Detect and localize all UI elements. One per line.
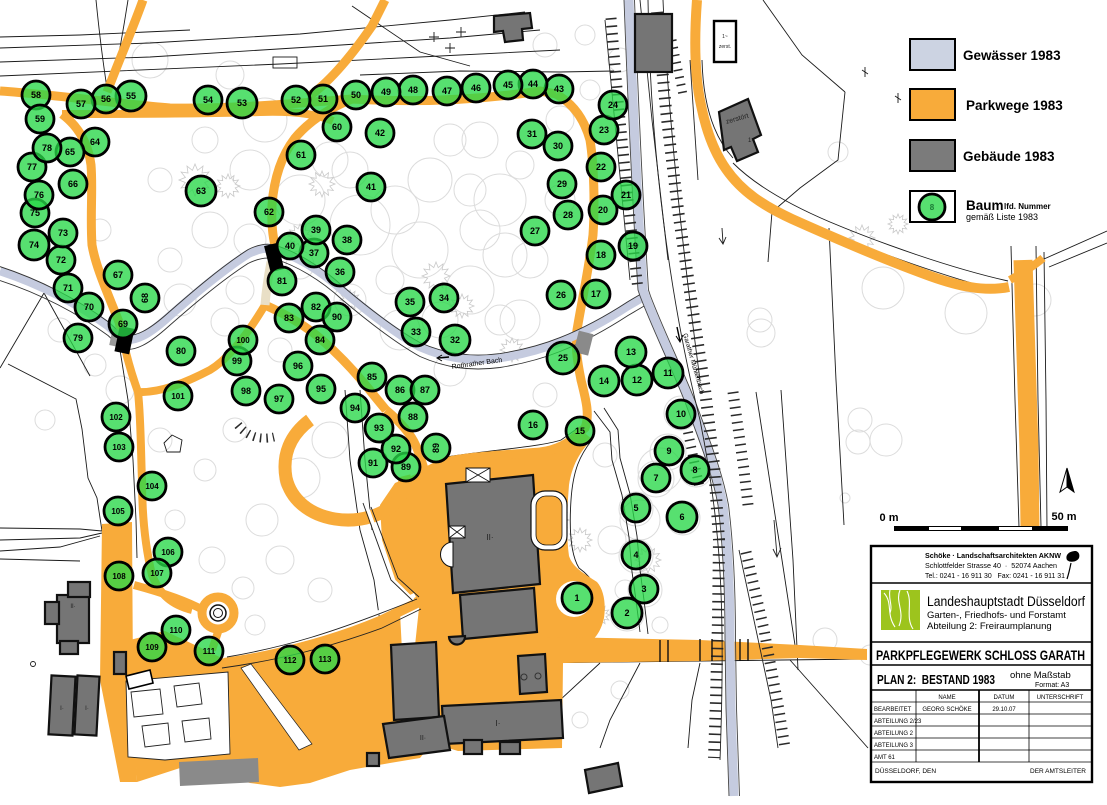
svg-text:25: 25 xyxy=(558,353,568,363)
svg-text:Garten-, Friedhofs- und Forsta: Garten-, Friedhofs- und Forstamt xyxy=(927,610,1066,621)
svg-text:0 m: 0 m xyxy=(880,512,899,524)
svg-text:36: 36 xyxy=(335,267,345,277)
svg-text:31: 31 xyxy=(527,129,537,139)
svg-text:DER AMTSLEITER: DER AMTSLEITER xyxy=(1030,768,1086,775)
svg-text:46: 46 xyxy=(471,83,481,93)
svg-text:Tel.: 0241 - 16 911 30 Fax:: Tel.: 0241 - 16 911 30 Fax: 0241 - 16 91… xyxy=(925,571,1065,580)
svg-text:II·: II· xyxy=(70,604,75,610)
svg-text:ABTEILUNG 2/23: ABTEILUNG 2/23 xyxy=(874,719,922,725)
svg-text:62: 62 xyxy=(264,207,274,217)
svg-text:79: 79 xyxy=(73,333,83,343)
svg-text:61: 61 xyxy=(296,150,306,160)
svg-text:106: 106 xyxy=(161,548,175,557)
svg-text:26: 26 xyxy=(556,290,566,300)
svg-text:Schlottfelder Strasse 40 · 5: Schlottfelder Strasse 40 · 52074 Aachen xyxy=(925,561,1057,570)
svg-text:96: 96 xyxy=(293,361,303,371)
svg-text:PARKPFLEGEWERK SCHLOSS GARATH: PARKPFLEGEWERK SCHLOSS GARATH xyxy=(876,648,1085,664)
svg-text:50 m: 50 m xyxy=(1051,511,1076,523)
svg-text:19: 19 xyxy=(628,241,638,251)
svg-text:14: 14 xyxy=(599,376,609,386)
svg-text:I·: I· xyxy=(60,706,64,712)
svg-text:47: 47 xyxy=(442,86,452,96)
svg-text:13: 13 xyxy=(626,347,636,357)
svg-text:23: 23 xyxy=(599,125,609,135)
svg-text:71: 71 xyxy=(63,283,73,293)
svg-text:Parkwege 1983: Parkwege 1983 xyxy=(966,98,1063,113)
svg-text:89: 89 xyxy=(401,462,411,472)
svg-text:22: 22 xyxy=(596,162,606,172)
svg-text:44: 44 xyxy=(528,79,538,89)
svg-text:103: 103 xyxy=(112,443,126,452)
svg-text:64: 64 xyxy=(90,137,100,147)
svg-text:48: 48 xyxy=(408,85,418,95)
svg-text:84: 84 xyxy=(315,335,325,345)
svg-text:92: 92 xyxy=(391,444,401,454)
svg-text:74: 74 xyxy=(29,240,39,250)
svg-text:51: 51 xyxy=(318,94,328,104)
svg-text:58: 58 xyxy=(31,90,41,100)
svg-text:20: 20 xyxy=(598,205,608,215)
svg-text:42: 42 xyxy=(375,128,385,138)
svg-text:72: 72 xyxy=(56,255,66,265)
svg-text:28: 28 xyxy=(563,210,573,220)
svg-text:1·: 1· xyxy=(748,138,753,144)
svg-text:2: 2 xyxy=(624,608,629,618)
svg-text:99: 99 xyxy=(232,356,242,366)
svg-text:29: 29 xyxy=(557,179,567,189)
svg-text:53: 53 xyxy=(237,98,247,108)
svg-text:34: 34 xyxy=(439,293,449,303)
svg-text:75: 75 xyxy=(30,208,40,218)
svg-text:24: 24 xyxy=(608,100,618,110)
svg-text:56: 56 xyxy=(101,94,111,104)
svg-text:GEORG SCHÖKE: GEORG SCHÖKE xyxy=(922,706,971,713)
svg-text:43: 43 xyxy=(554,84,564,94)
svg-text:69: 69 xyxy=(118,319,128,329)
svg-text:78: 78 xyxy=(42,143,52,153)
svg-text:91: 91 xyxy=(368,458,378,468)
svg-text:8: 8 xyxy=(930,203,935,212)
svg-text:70: 70 xyxy=(84,302,94,312)
svg-text:Gewässer 1983: Gewässer 1983 xyxy=(963,48,1061,63)
svg-text:9: 9 xyxy=(666,446,671,456)
svg-text:68: 68 xyxy=(140,293,150,303)
svg-text:80: 80 xyxy=(176,346,186,356)
svg-text:18: 18 xyxy=(596,250,606,260)
svg-text:II·: II· xyxy=(486,533,493,542)
svg-text:zerst.: zerst. xyxy=(719,44,731,50)
svg-text:97: 97 xyxy=(274,394,284,404)
svg-text:63: 63 xyxy=(196,186,206,196)
svg-text:112: 112 xyxy=(284,656,297,665)
svg-text:108: 108 xyxy=(112,572,126,581)
svg-text:Baum: Baum xyxy=(966,198,1004,213)
svg-text:17: 17 xyxy=(591,289,601,299)
svg-text:104: 104 xyxy=(145,482,159,491)
svg-text:Landeshauptstadt Düsseldorf: Landeshauptstadt Düsseldorf xyxy=(927,594,1085,609)
svg-text:7: 7 xyxy=(653,473,658,483)
svg-text:76: 76 xyxy=(34,190,44,200)
svg-text:66: 66 xyxy=(68,179,78,189)
svg-text:27: 27 xyxy=(530,226,540,236)
svg-text:1: 1 xyxy=(574,593,579,603)
svg-text:59: 59 xyxy=(35,114,45,124)
svg-text:81: 81 xyxy=(277,276,287,286)
svg-text:40: 40 xyxy=(285,241,295,251)
svg-text:88: 88 xyxy=(408,412,418,422)
svg-text:38: 38 xyxy=(342,235,352,245)
svg-text:93: 93 xyxy=(374,423,384,433)
svg-text:85: 85 xyxy=(367,372,377,382)
svg-text:52: 52 xyxy=(291,95,301,105)
svg-text:94: 94 xyxy=(350,403,360,413)
svg-text:54: 54 xyxy=(203,95,213,105)
svg-text:109: 109 xyxy=(145,643,159,652)
svg-text:105: 105 xyxy=(111,507,125,516)
svg-text:II·: II· xyxy=(420,735,426,742)
svg-text:35: 35 xyxy=(405,297,415,307)
svg-text:ABTEILUNG 3: ABTEILUNG 3 xyxy=(874,743,914,749)
svg-text:82: 82 xyxy=(311,302,321,312)
svg-text:33: 33 xyxy=(411,327,421,337)
svg-text:lfd. Nummer: lfd. Nummer xyxy=(1004,202,1051,211)
svg-text:100: 100 xyxy=(236,336,250,345)
svg-text:12: 12 xyxy=(632,375,642,385)
svg-text:102: 102 xyxy=(109,413,123,422)
svg-text:57: 57 xyxy=(76,99,86,109)
svg-text:37: 37 xyxy=(309,248,319,258)
svg-text:60: 60 xyxy=(332,122,342,132)
svg-text:87: 87 xyxy=(420,385,430,395)
svg-text:DÜSSELDORF, DEN: DÜSSELDORF, DEN xyxy=(875,767,936,775)
svg-text:3: 3 xyxy=(641,584,646,594)
svg-text:I·: I· xyxy=(496,719,501,728)
svg-text:ohne Maßstab: ohne Maßstab xyxy=(1010,670,1071,681)
svg-text:49: 49 xyxy=(381,87,391,97)
svg-text:21: 21 xyxy=(621,190,631,200)
svg-text:107: 107 xyxy=(150,569,164,578)
svg-text:50: 50 xyxy=(351,90,361,100)
svg-text:95: 95 xyxy=(316,384,326,394)
svg-text:73: 73 xyxy=(58,228,68,238)
svg-text:6: 6 xyxy=(679,512,684,522)
svg-text:55: 55 xyxy=(126,91,136,101)
svg-text:Schöke · Landschaftsarchitekte: Schöke · Landschaftsarchitekten AKNW xyxy=(925,551,1062,560)
svg-text:11: 11 xyxy=(663,368,673,378)
svg-text:98: 98 xyxy=(241,386,251,396)
svg-text:29.10.07: 29.10.07 xyxy=(992,707,1016,713)
svg-text:I·: I· xyxy=(85,706,89,712)
svg-text:1~: 1~ xyxy=(722,34,728,40)
svg-text:5: 5 xyxy=(633,503,638,513)
svg-text:90: 90 xyxy=(332,312,342,322)
svg-text:Format: A3: Format: A3 xyxy=(1035,682,1069,689)
svg-text:30: 30 xyxy=(553,141,563,151)
svg-text:32: 32 xyxy=(450,335,460,345)
svg-text:DATUM: DATUM xyxy=(994,695,1015,701)
svg-text:110: 110 xyxy=(170,626,183,635)
svg-text:101: 101 xyxy=(171,392,185,401)
svg-text:86: 86 xyxy=(395,385,405,395)
svg-text:16: 16 xyxy=(528,420,538,430)
svg-text:ABTEILUNG 2: ABTEILUNG 2 xyxy=(874,731,914,737)
svg-text:39: 39 xyxy=(311,225,321,235)
svg-text:41: 41 xyxy=(366,182,376,192)
svg-text:BEARBEITET: BEARBEITET xyxy=(874,707,912,713)
svg-text:8: 8 xyxy=(692,465,697,475)
svg-text:67: 67 xyxy=(113,270,123,280)
svg-text:gemäß Liste 1983: gemäß Liste 1983 xyxy=(966,212,1038,222)
svg-text:15: 15 xyxy=(575,426,585,436)
svg-text:Gebäude 1983: Gebäude 1983 xyxy=(963,149,1055,164)
svg-text:83: 83 xyxy=(284,313,294,323)
svg-text:111: 111 xyxy=(203,647,216,656)
svg-text:UNTERSCHRIFT: UNTERSCHRIFT xyxy=(1037,695,1084,701)
svg-text:4: 4 xyxy=(633,550,638,560)
svg-text:45: 45 xyxy=(503,80,513,90)
svg-text:65: 65 xyxy=(65,147,75,157)
svg-text:77: 77 xyxy=(27,162,37,172)
svg-text:NAME: NAME xyxy=(938,695,955,701)
svg-text:10: 10 xyxy=(676,409,686,419)
svg-text:113: 113 xyxy=(319,655,332,664)
svg-text:AMT 61: AMT 61 xyxy=(874,755,896,761)
svg-text:Abteilung 2: Freiraumplanung: Abteilung 2: Freiraumplanung xyxy=(927,621,1052,632)
svg-text:PLAN 2: BESTAND 1983: PLAN 2: BESTAND 1983 xyxy=(877,672,995,687)
svg-text:89: 89 xyxy=(431,443,441,453)
